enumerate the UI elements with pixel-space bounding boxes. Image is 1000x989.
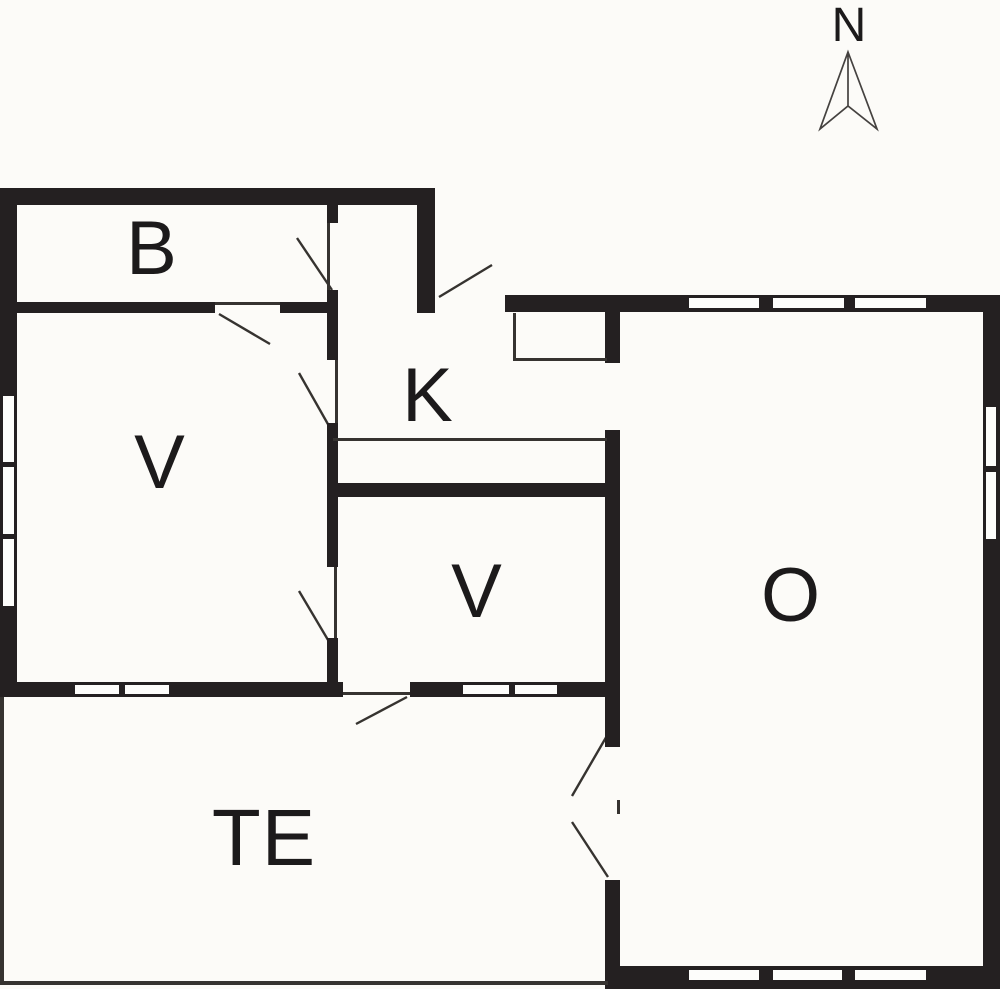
v2-south-window-1-window-marker xyxy=(462,684,510,695)
o-west-wall-upper xyxy=(605,430,620,747)
v-k-door-swing xyxy=(299,373,329,426)
v2-north-wall xyxy=(327,483,620,497)
v-v2-door-swing xyxy=(299,591,331,645)
top-wall xyxy=(0,188,435,205)
o-south-window-1-window-marker xyxy=(688,969,760,981)
o-south-window-3-window-marker xyxy=(854,969,927,981)
o-east-window-2-window-marker xyxy=(985,471,997,540)
v-south-window-1-window-marker xyxy=(74,684,120,695)
o-north-window-2-window-marker xyxy=(772,297,845,309)
o-north-window-1-window-marker xyxy=(688,297,760,309)
closet-west-edge xyxy=(513,313,516,361)
b-south-door-swing xyxy=(219,314,270,344)
closet-south-edge xyxy=(513,358,607,361)
west-window-3-window-marker xyxy=(2,538,15,607)
room-label-te: TE xyxy=(212,798,316,878)
room-label-b: B xyxy=(126,211,178,287)
o-te-door-swing-top xyxy=(572,734,608,796)
floor-plan: N BVKVOTE xyxy=(0,0,1000,989)
o-south-window-2-window-marker xyxy=(772,969,843,981)
west-window-1-window-marker xyxy=(2,395,15,463)
v2-south-window-2-window-marker xyxy=(514,684,558,695)
terrace-west-edge xyxy=(0,697,4,985)
north-label: N xyxy=(832,2,867,50)
v-v2-door-header xyxy=(334,567,337,638)
room-label-v-west: V xyxy=(134,425,186,501)
b-south-door-header xyxy=(215,302,280,305)
north-arrow-icon xyxy=(820,52,877,129)
room-label-v-middle: V xyxy=(451,554,503,630)
b-east-wall-upper xyxy=(327,205,338,223)
te-north-wall-west xyxy=(0,682,343,697)
room-label-k: K xyxy=(402,358,454,434)
o-te-door-swing-bottom xyxy=(572,822,608,877)
v-south-window-2-window-marker xyxy=(124,684,170,695)
o-north-window-3-window-marker xyxy=(854,297,927,309)
o-te-door-meeting-mark xyxy=(617,800,620,814)
room-label-o: O xyxy=(761,558,821,634)
v2-te-door-swing xyxy=(356,697,407,724)
west-window-2-window-marker xyxy=(2,466,15,535)
b-east-door-header xyxy=(327,223,330,290)
vestibule-east-wall xyxy=(417,205,435,313)
kitchen-counter-line xyxy=(333,438,607,441)
b-south-wall-west xyxy=(0,302,215,313)
v2-te-door-sill xyxy=(343,692,410,695)
v-k-door-header xyxy=(335,360,338,423)
terrace-south-edge xyxy=(0,981,608,985)
mid-wall-cross xyxy=(327,290,338,360)
o-east-window-1-window-marker xyxy=(985,406,997,467)
entrance-door-swing xyxy=(439,265,492,297)
